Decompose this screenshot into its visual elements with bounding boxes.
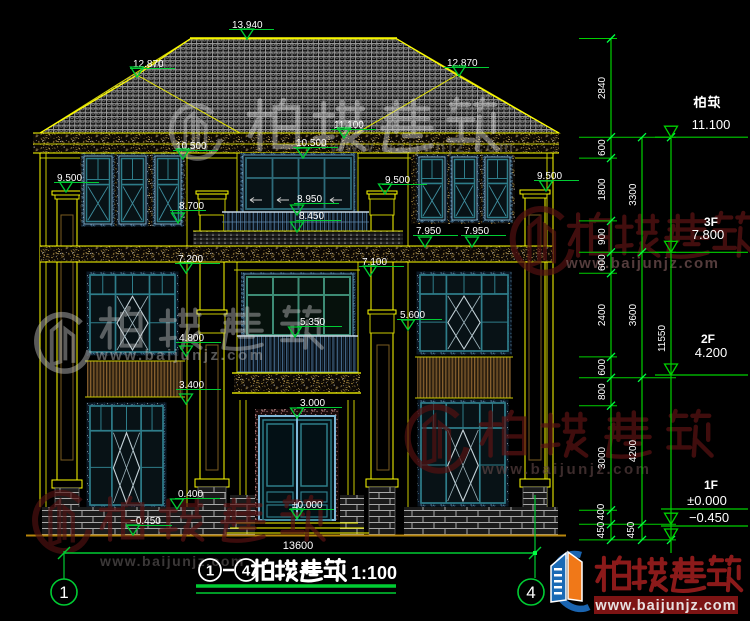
svg-text:2840: 2840 [597,76,608,99]
svg-text:13600: 13600 [283,540,314,552]
svg-text:3300: 3300 [628,183,639,206]
svg-text:www.baijunjz.com: www.baijunjz.com [594,598,736,614]
svg-text:±0.000: ±0.000 [687,493,727,508]
svg-text:1800: 1800 [597,178,608,201]
svg-text:800: 800 [597,383,608,400]
svg-text:1:100: 1:100 [351,563,397,583]
svg-text:450: 450 [626,521,637,538]
svg-text:1F: 1F [704,478,718,492]
svg-text:2400: 2400 [597,303,608,326]
svg-text:11550: 11550 [657,325,668,353]
svg-text:11.100: 11.100 [692,117,731,132]
svg-text:400: 400 [596,503,607,520]
svg-text:www.baijunjz.com: www.baijunjz.com [95,347,265,364]
svg-text:−0.450: −0.450 [689,510,729,525]
svg-text:3000: 3000 [597,446,608,469]
svg-text:600: 600 [597,254,608,271]
svg-text:www.baijunjz.com: www.baijunjz.com [329,139,516,156]
svg-text:2F: 2F [701,332,715,346]
svg-text:1: 1 [59,583,68,602]
svg-text:www.baijunjz.com: www.baijunjz.com [481,461,651,478]
svg-text:900: 900 [597,228,608,245]
svg-text:600: 600 [597,139,608,156]
svg-text:7.800: 7.800 [692,227,725,242]
svg-text:600: 600 [597,359,608,376]
svg-text:1: 1 [206,563,214,580]
svg-text:4.200: 4.200 [695,345,728,360]
svg-text:4: 4 [526,583,535,602]
svg-text:4200: 4200 [628,439,639,462]
svg-text:3600: 3600 [628,304,639,327]
svg-text:450: 450 [596,521,607,538]
svg-text:www.baijunjz.com: www.baijunjz.com [99,553,245,569]
svg-text:4: 4 [242,563,251,580]
